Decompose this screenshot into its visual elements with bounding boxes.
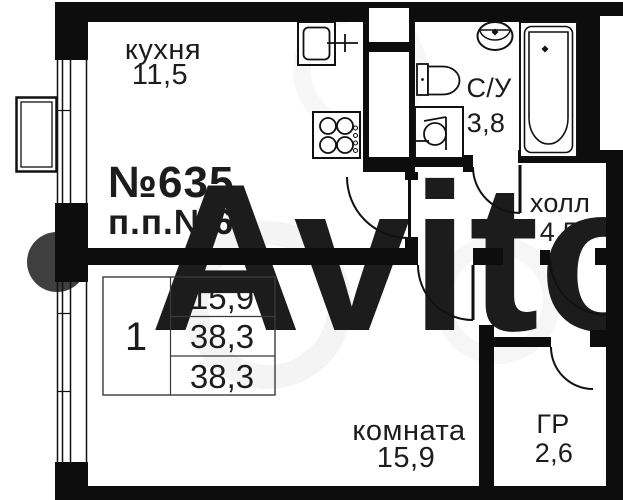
wall [473, 248, 503, 265]
vent-shaft-interior [369, 8, 409, 157]
table-total-area-alt: 38,3 [190, 358, 254, 395]
wall [606, 150, 623, 500]
door-leaf [519, 165, 522, 213]
door-frame [595, 248, 606, 265]
apartment-id: №635 п.п.№6 [108, 158, 234, 242]
window-icon [57, 282, 87, 462]
toilet-icon [417, 64, 460, 95]
wall [55, 2, 88, 60]
stove-icon [313, 112, 360, 158]
table-living-area: 15,9 [190, 279, 254, 316]
kitchen-area: 11,5 [132, 59, 188, 91]
wardrobe-label: ГР [536, 409, 569, 439]
wall [577, 2, 600, 150]
ac-unit-icon [17, 98, 57, 172]
door-frame [405, 172, 418, 180]
living-room-area: 15,9 [377, 442, 435, 474]
door-frame [540, 250, 550, 265]
wall [55, 2, 600, 22]
window-icon [57, 60, 87, 203]
door-frame [590, 330, 606, 347]
unit-label: п.п.№6 [108, 203, 234, 242]
table-total-area: 38,3 [190, 318, 254, 355]
bathroom-area: 3,8 [467, 108, 505, 138]
door-leaf [472, 265, 475, 320]
wall [88, 248, 418, 265]
hall-area: 4,5 [540, 217, 578, 247]
wardrobe-area: 2,6 [535, 438, 573, 468]
hall-label: холл [530, 188, 590, 218]
bathtub-icon [520, 22, 577, 157]
apartment-number: №635 [108, 158, 234, 207]
table-rooms-count: 1 [125, 315, 147, 359]
washbasin-icon [478, 22, 513, 50]
floor-plan-canvas: Avito [0, 0, 623, 500]
door-leaf [408, 180, 411, 237]
wall [55, 486, 623, 500]
kitchen-sink-icon [298, 22, 358, 65]
bathroom-label: С/У [466, 73, 512, 103]
floor-plan: Avito [0, 0, 623, 500]
washing-machine-icon [415, 107, 463, 158]
door-frame [463, 155, 473, 172]
wall [55, 203, 88, 282]
summary-table: 1 15,9 38,3 38,3 [103, 277, 275, 395]
vent-shaft-divider [369, 42, 409, 52]
wall [479, 325, 494, 500]
